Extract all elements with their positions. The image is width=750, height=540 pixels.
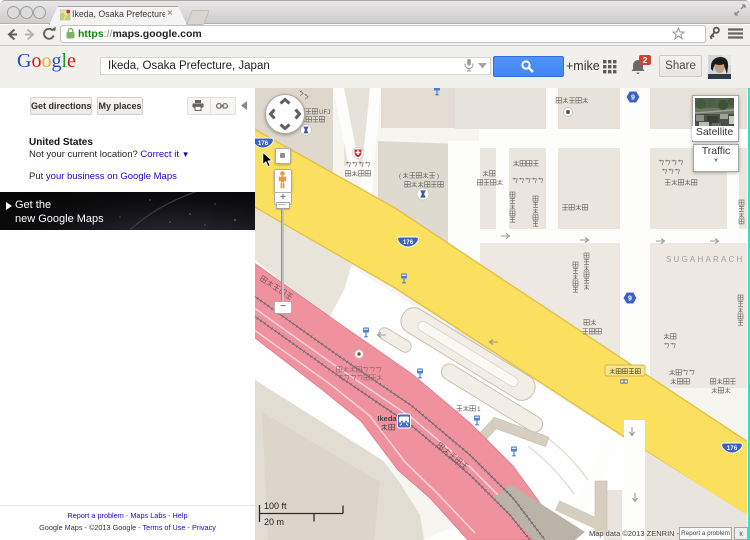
svg-text:9: 9 [628, 296, 632, 303]
svg-text:(: ( [399, 174, 401, 180]
svg-text:176: 176 [403, 239, 414, 246]
svg-text:1: 1 [477, 406, 481, 413]
svg-text:): ) [437, 174, 439, 180]
svg-text:176: 176 [727, 445, 738, 452]
svg-text:Ikeda: Ikeda [377, 414, 397, 423]
svg-text:9: 9 [631, 95, 635, 102]
svg-text:UFJ: UFJ [319, 109, 330, 116]
svg-text:100 ft: 100 ft [264, 501, 287, 511]
svg-text:176: 176 [258, 140, 269, 147]
svg-text:20 m: 20 m [264, 517, 284, 527]
svg-text:SUGAHARACH: SUGAHARACH [666, 255, 744, 264]
